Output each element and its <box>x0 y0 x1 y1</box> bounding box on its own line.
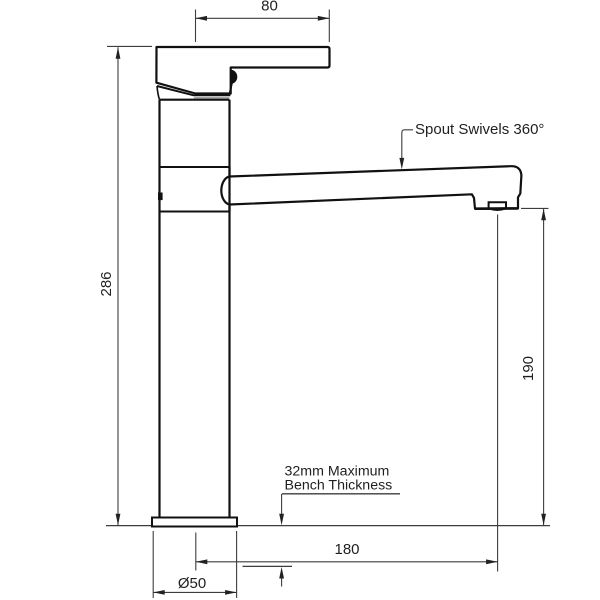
svg-text:180: 180 <box>334 541 359 558</box>
svg-text:80: 80 <box>261 0 278 15</box>
svg-text:190: 190 <box>520 356 537 381</box>
svg-text:286: 286 <box>98 271 115 296</box>
svg-text:Ø50: Ø50 <box>178 575 206 592</box>
svg-text:Bench Thickness: Bench Thickness <box>285 478 393 494</box>
svg-text:Spout Swivels 360°: Spout Swivels 360° <box>415 121 544 138</box>
